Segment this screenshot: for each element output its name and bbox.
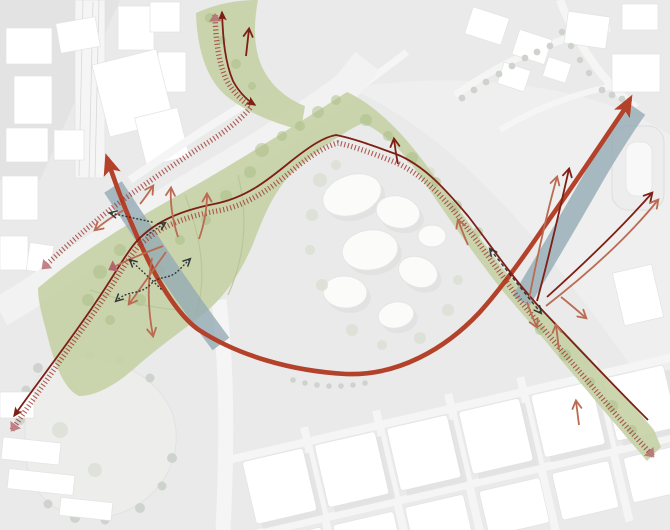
map-canvas [0, 0, 670, 530]
site-circulation-map [0, 0, 670, 530]
